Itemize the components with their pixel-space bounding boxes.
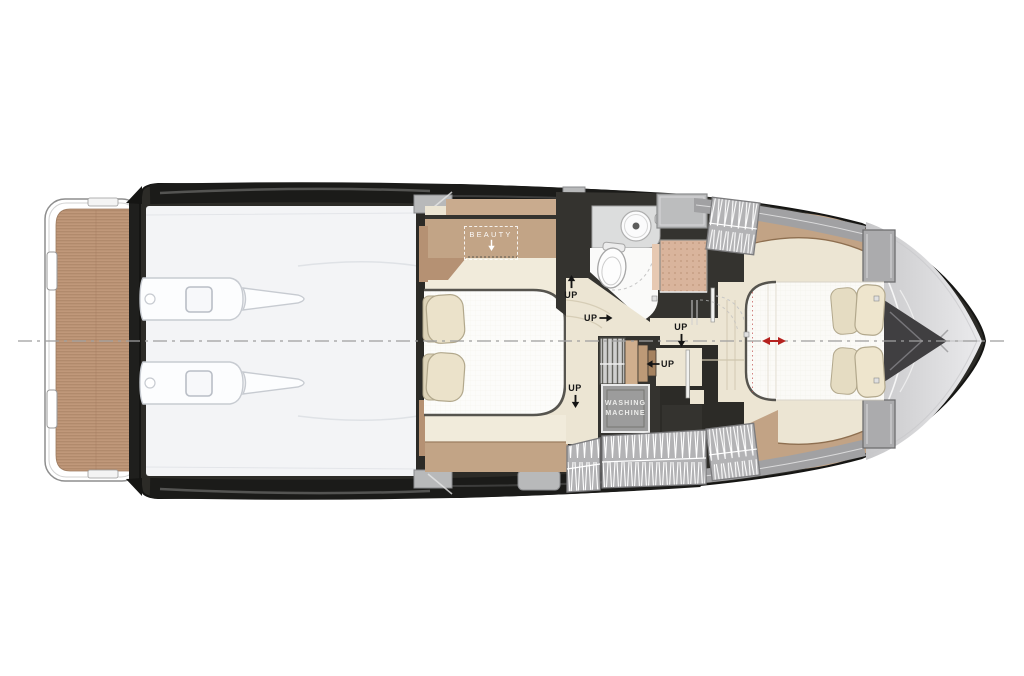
- stair-slats: [600, 338, 625, 384]
- engine-hatch: [186, 371, 212, 396]
- cleat: [47, 252, 57, 290]
- pillow: [854, 346, 885, 398]
- floor-plan-canvas: BEAUTY WASHING MACHINE UP UP UP UP UP: [0, 0, 1024, 676]
- right-arrow-icon: [598, 313, 612, 324]
- swim-platform: [45, 198, 143, 481]
- sink: [621, 211, 651, 241]
- down-arrow-icon: [570, 394, 581, 408]
- down-arrow-icon: [676, 333, 687, 347]
- teak-deck: [56, 209, 130, 471]
- down-arrow-icon: [487, 239, 496, 251]
- left-arrow-icon: [647, 359, 661, 370]
- up-arrow-icon: [566, 275, 577, 289]
- pillow: [425, 294, 465, 344]
- up-label-landing: UP: [584, 311, 611, 325]
- beauty-label-text: BEAUTY: [469, 230, 512, 239]
- up-label-corridor: UP: [668, 322, 694, 347]
- shower: [652, 240, 707, 292]
- washing-machine-label: WASHING MACHINE: [602, 387, 649, 430]
- pillow: [425, 352, 465, 402]
- mid-cabin-bed: [423, 290, 565, 415]
- up-label-lower: UP: [648, 357, 675, 371]
- floor-plan-drawing: [0, 0, 1024, 676]
- engine-hatch: [186, 287, 212, 312]
- pillow: [854, 284, 885, 336]
- up-label-mid-port: UP: [558, 275, 584, 300]
- up-label-mid-starboard: UP: [562, 383, 588, 408]
- beauty-label: BEAUTY: [464, 226, 518, 260]
- cleat: [47, 390, 57, 428]
